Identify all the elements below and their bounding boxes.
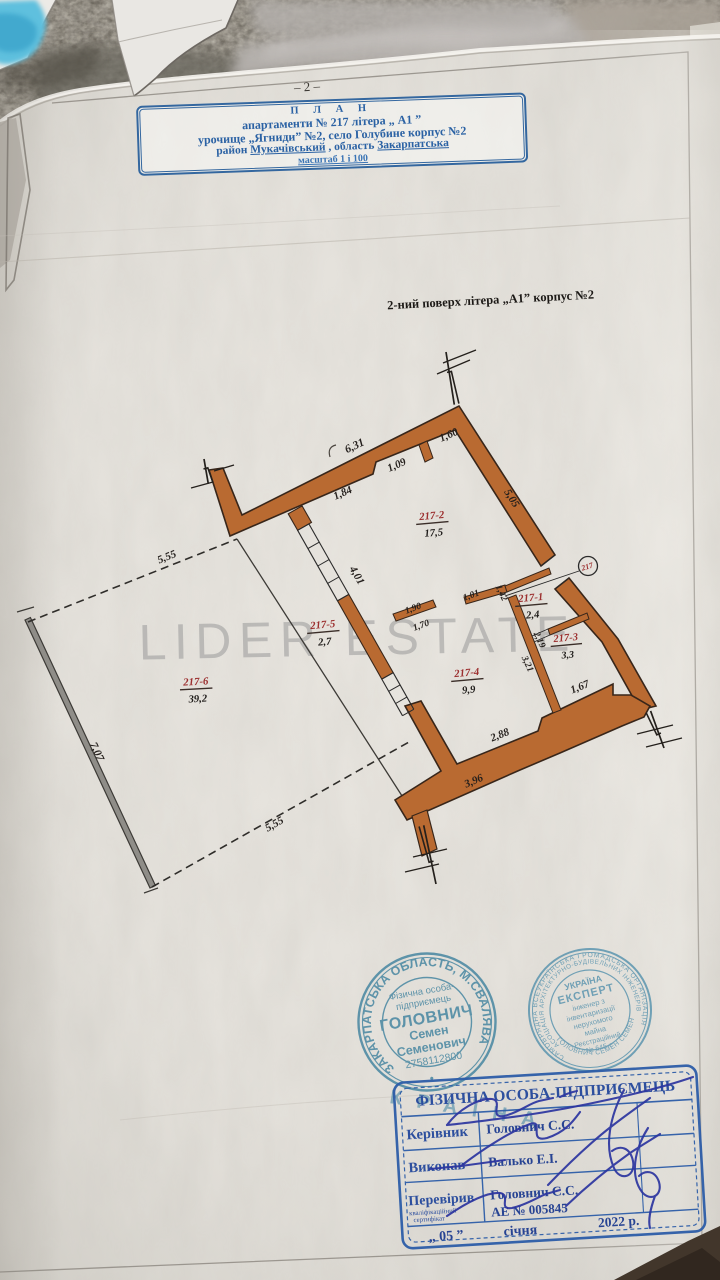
svg-text:217-5: 217-5	[309, 618, 337, 632]
svg-text:217-1: 217-1	[517, 591, 544, 605]
svg-text:217-4: 217-4	[453, 666, 481, 680]
svg-text:2,4: 2,4	[525, 609, 540, 621]
svg-text:39,2: 39,2	[187, 693, 208, 705]
svg-text:„ 05 ”: „ 05 ”	[428, 1228, 464, 1245]
svg-text:17,5: 17,5	[424, 527, 444, 540]
svg-text:січня: січня	[503, 1223, 538, 1240]
svg-text:2022 р.: 2022 р.	[598, 1213, 640, 1230]
svg-text:217-2: 217-2	[418, 509, 446, 523]
svg-text:9,9: 9,9	[462, 684, 477, 696]
svg-text:3,3: 3,3	[560, 649, 574, 661]
svg-text:2,7: 2,7	[317, 636, 333, 648]
svg-text:217-3: 217-3	[552, 632, 578, 645]
svg-text:217-6: 217-6	[182, 675, 209, 688]
